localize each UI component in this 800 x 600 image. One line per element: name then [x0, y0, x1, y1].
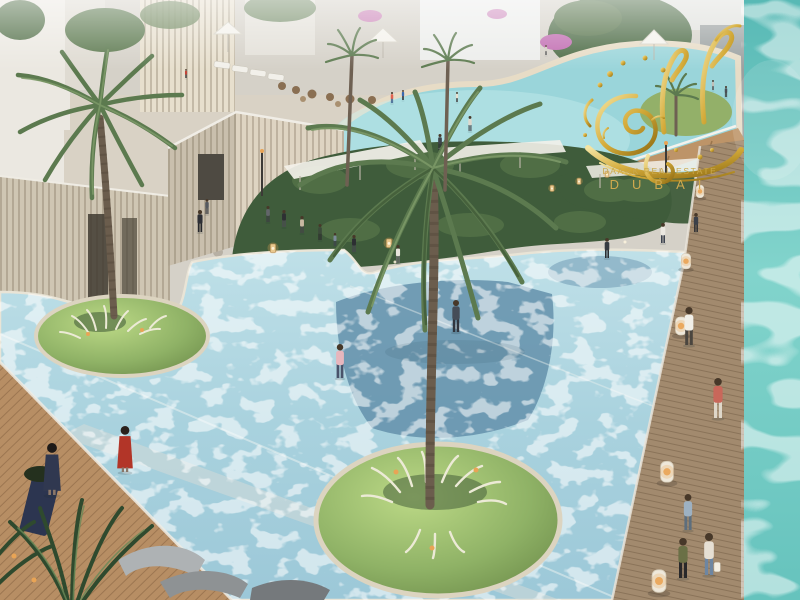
shopping-bag [714, 562, 720, 571]
wall-gate-2 [122, 218, 137, 298]
scene-canvas: DAARK REAL ESTATE DUBAI [0, 0, 800, 600]
island-center-light-3 [430, 546, 435, 551]
island-left-bush [74, 312, 126, 332]
deck-light-2 [32, 578, 37, 583]
palm-center-trunk [430, 178, 434, 505]
island-center-light-2 [474, 468, 479, 473]
cube-door [198, 154, 224, 200]
watermark-line2: DUBAI [610, 177, 715, 192]
island-center-grass [316, 444, 560, 596]
resort-render: DAARK REAL ESTATE DUBAI [0, 0, 800, 600]
island-left [36, 296, 208, 376]
island-center-light-1 [394, 470, 399, 475]
plaza-lantern [548, 184, 556, 192]
lamp-post-1-light [260, 149, 264, 153]
palm-center-shadow [385, 340, 525, 364]
island-left-light-1 [86, 332, 90, 336]
deck-light-1 [12, 554, 17, 559]
island-left-light-2 [140, 328, 144, 332]
plaza-lantern [575, 177, 583, 185]
atmospheric-haze [0, 0, 744, 70]
wall-gate-1 [88, 214, 108, 300]
lamp-post-2-light [664, 141, 668, 145]
island-left-grass [36, 296, 208, 376]
plaza-lantern [268, 243, 279, 254]
island-center [316, 444, 560, 596]
watermark-line1: DAARK REAL ESTATE [603, 166, 718, 176]
